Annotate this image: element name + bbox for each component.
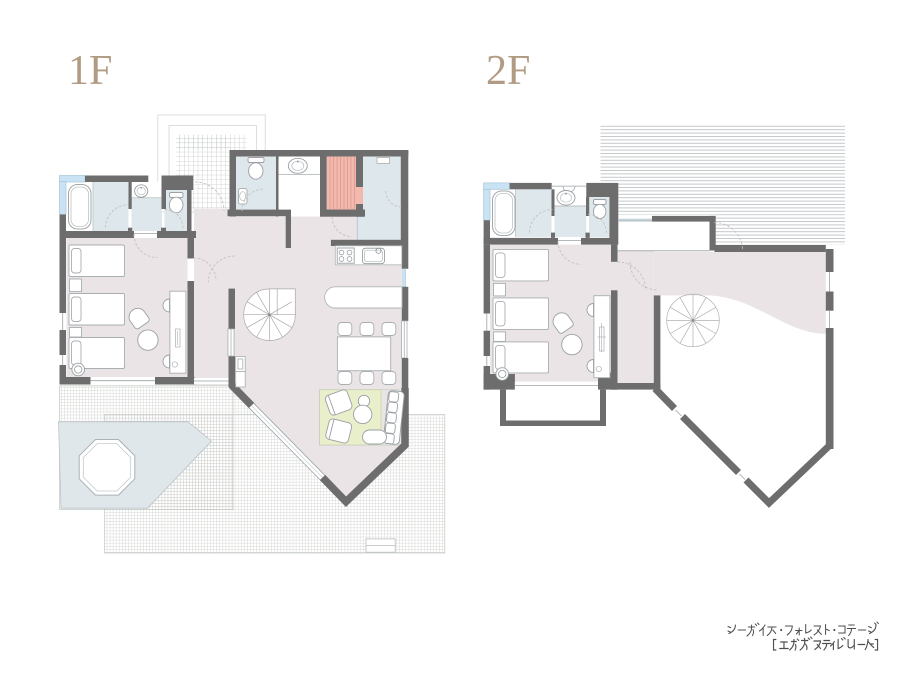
svg-text:2F: 2F: [486, 48, 530, 94]
svg-text:1F: 1F: [68, 48, 112, 94]
